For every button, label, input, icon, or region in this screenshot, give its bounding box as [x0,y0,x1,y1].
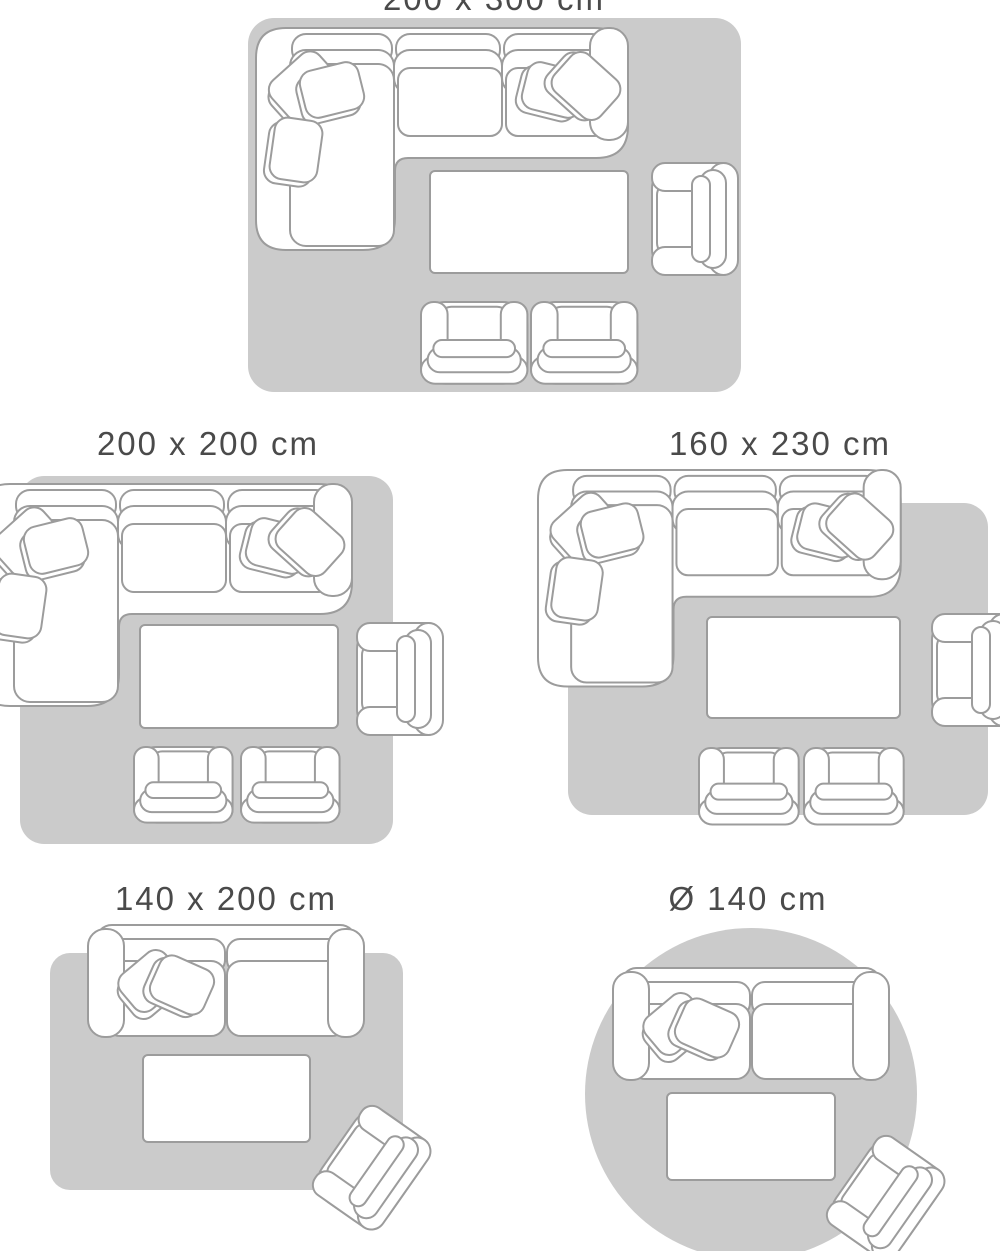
floorplan-160x230 [538,470,1000,825]
coffee-table [707,617,900,718]
pillow [262,115,324,189]
coffee-table [667,1093,835,1180]
armchair [134,747,233,823]
armchair [932,614,1000,726]
sofa [613,968,889,1080]
rug-size-guide: 200 x 300 cm 200 x 200 cm 160 x 230 cm 1… [0,0,1000,1251]
armchair [357,623,443,735]
floorplan-canvas [0,0,1000,1251]
floorplan-200x200 [0,476,443,844]
floorplan-140x200 [50,925,436,1235]
armchair [531,302,637,384]
coffee-table [140,625,338,728]
armchair [699,748,799,825]
armchair [241,747,340,823]
floorplan-round-140 [585,928,950,1251]
armchair [421,302,527,384]
floorplan-200x300 [248,18,741,392]
coffee-table [143,1055,310,1142]
armchair [652,163,738,275]
armchair [804,748,904,825]
pillow [544,555,604,627]
sofa [88,925,364,1037]
coffee-table [430,171,628,273]
